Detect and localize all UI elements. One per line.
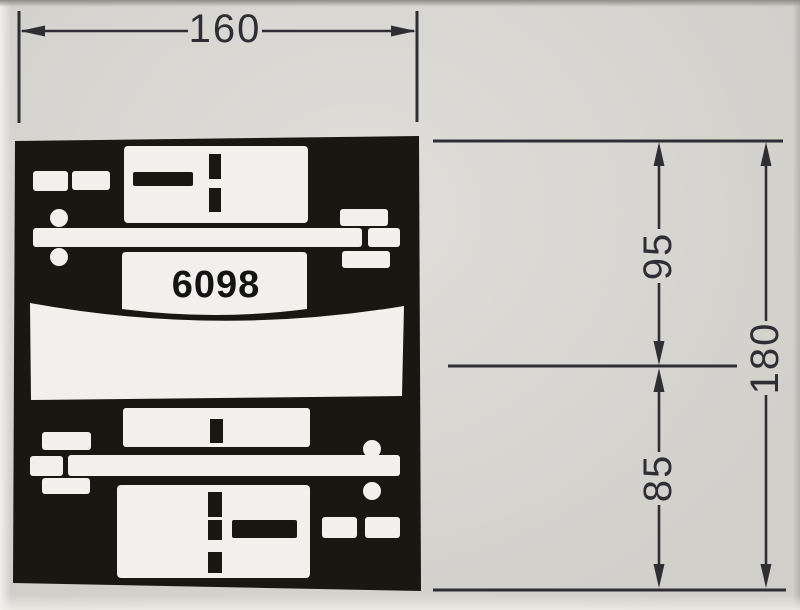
- cutout-small-bottom-right-2: [365, 517, 400, 538]
- arrow-up-icon: [761, 142, 772, 166]
- arrow-down-icon: [654, 564, 665, 588]
- cutout-small-bottom-right-1: [322, 517, 357, 538]
- drawing-linework: [0, 0, 800, 610]
- detail-vertical-dash-bottom-2: [208, 520, 222, 540]
- hole-top-left-2: [50, 248, 68, 266]
- cutout-upper-bar: [33, 228, 362, 247]
- cutout-upper-bar-end: [368, 228, 400, 247]
- hole-bottom-right-1: [363, 440, 381, 458]
- cutout-small-top-right-1: [340, 209, 388, 226]
- height-extension-lines: [433, 141, 786, 590]
- upper-height-dim-label: 95: [638, 232, 678, 281]
- cutout-small-top-left-1: [33, 171, 68, 191]
- cutout-small-top-right-2: [342, 251, 390, 268]
- detail-vertical-dash-bottom-3: [208, 552, 222, 573]
- arrow-up-icon: [654, 368, 665, 392]
- cutout-small-top-left-2: [72, 171, 110, 190]
- arrow-down-icon: [654, 341, 665, 365]
- cutout-small-bottom-left-2: [42, 478, 90, 494]
- cutout-lower-bar: [68, 455, 400, 476]
- width-dim-label: 160: [189, 9, 262, 49]
- detail-vertical-dash-top-1: [209, 154, 221, 179]
- arrow-left-icon: [20, 26, 45, 37]
- cutout-lower-bar-start: [30, 456, 63, 476]
- detail-vertical-dash-bottom-1: [208, 492, 222, 517]
- cutout-small-bottom-left-1: [42, 432, 91, 450]
- arrow-up-icon: [654, 142, 665, 166]
- part-number-label: 6098: [172, 266, 261, 304]
- hole-bottom-right-2: [363, 482, 381, 500]
- hole-top-left-1: [50, 209, 68, 227]
- arrow-right-icon: [391, 26, 416, 37]
- detail-horizontal-bar-top: [133, 172, 193, 186]
- detail-vertical-dash-mid: [210, 419, 223, 443]
- scanned-drawing: 160 6098 95 85 180: [0, 0, 800, 610]
- arrow-down-icon: [761, 564, 772, 588]
- detail-horizontal-bar-bottom: [232, 520, 297, 538]
- detail-vertical-dash-top-2: [209, 188, 221, 212]
- lower-height-dim-label: 85: [638, 454, 678, 503]
- total-height-dim-label: 180: [745, 322, 785, 395]
